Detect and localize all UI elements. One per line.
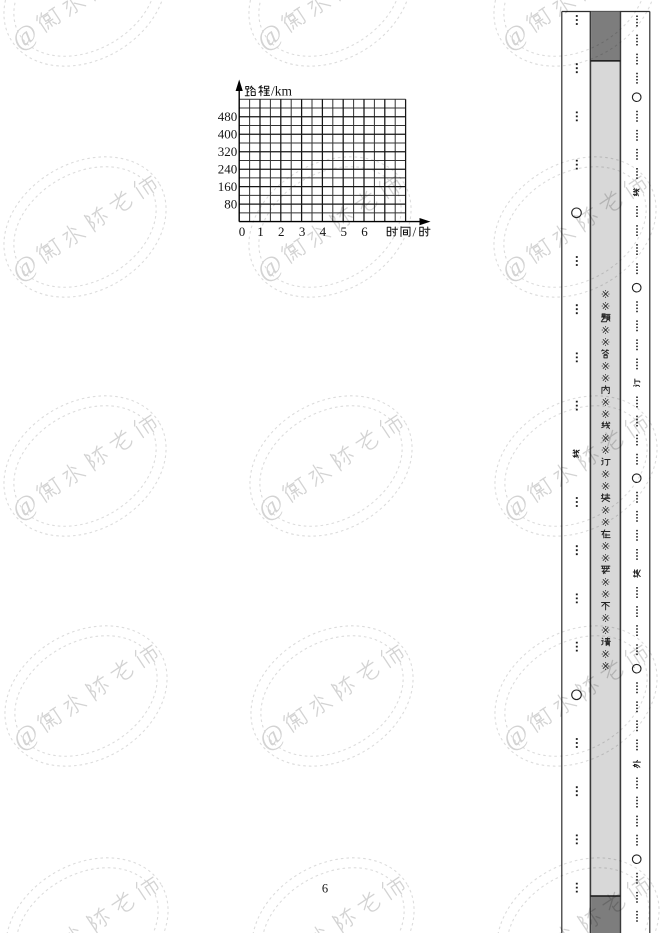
svg-text:/km: /km (271, 84, 293, 99)
svg-text:4: 4 (320, 224, 327, 239)
svg-text:@: @ (6, 487, 43, 526)
svg-text:@: @ (251, 17, 288, 56)
svg-text:80: 80 (224, 197, 237, 212)
svg-text:@: @ (252, 487, 289, 526)
svg-text:6: 6 (322, 882, 328, 896)
svg-text:1: 1 (257, 224, 264, 239)
svg-text:160: 160 (218, 179, 238, 194)
svg-text:0: 0 (239, 224, 246, 239)
svg-text:@: @ (253, 717, 290, 756)
svg-text:@: @ (497, 717, 534, 756)
svg-text:@: @ (251, 248, 288, 287)
svg-text:2: 2 (278, 224, 285, 239)
svg-text:@: @ (497, 487, 534, 526)
svg-text:@: @ (6, 248, 43, 287)
svg-text:@: @ (496, 17, 533, 56)
svg-text:3: 3 (299, 224, 306, 239)
svg-text:320: 320 (218, 144, 238, 159)
svg-text:400: 400 (218, 127, 238, 142)
svg-text:/: / (413, 224, 417, 239)
svg-text:@: @ (6, 17, 43, 56)
svg-text:240: 240 (218, 162, 238, 177)
svg-text:5: 5 (340, 224, 347, 239)
svg-text:480: 480 (218, 109, 238, 124)
svg-text:6: 6 (361, 224, 368, 239)
svg-text:@: @ (7, 717, 44, 756)
svg-text:@: @ (496, 248, 533, 287)
